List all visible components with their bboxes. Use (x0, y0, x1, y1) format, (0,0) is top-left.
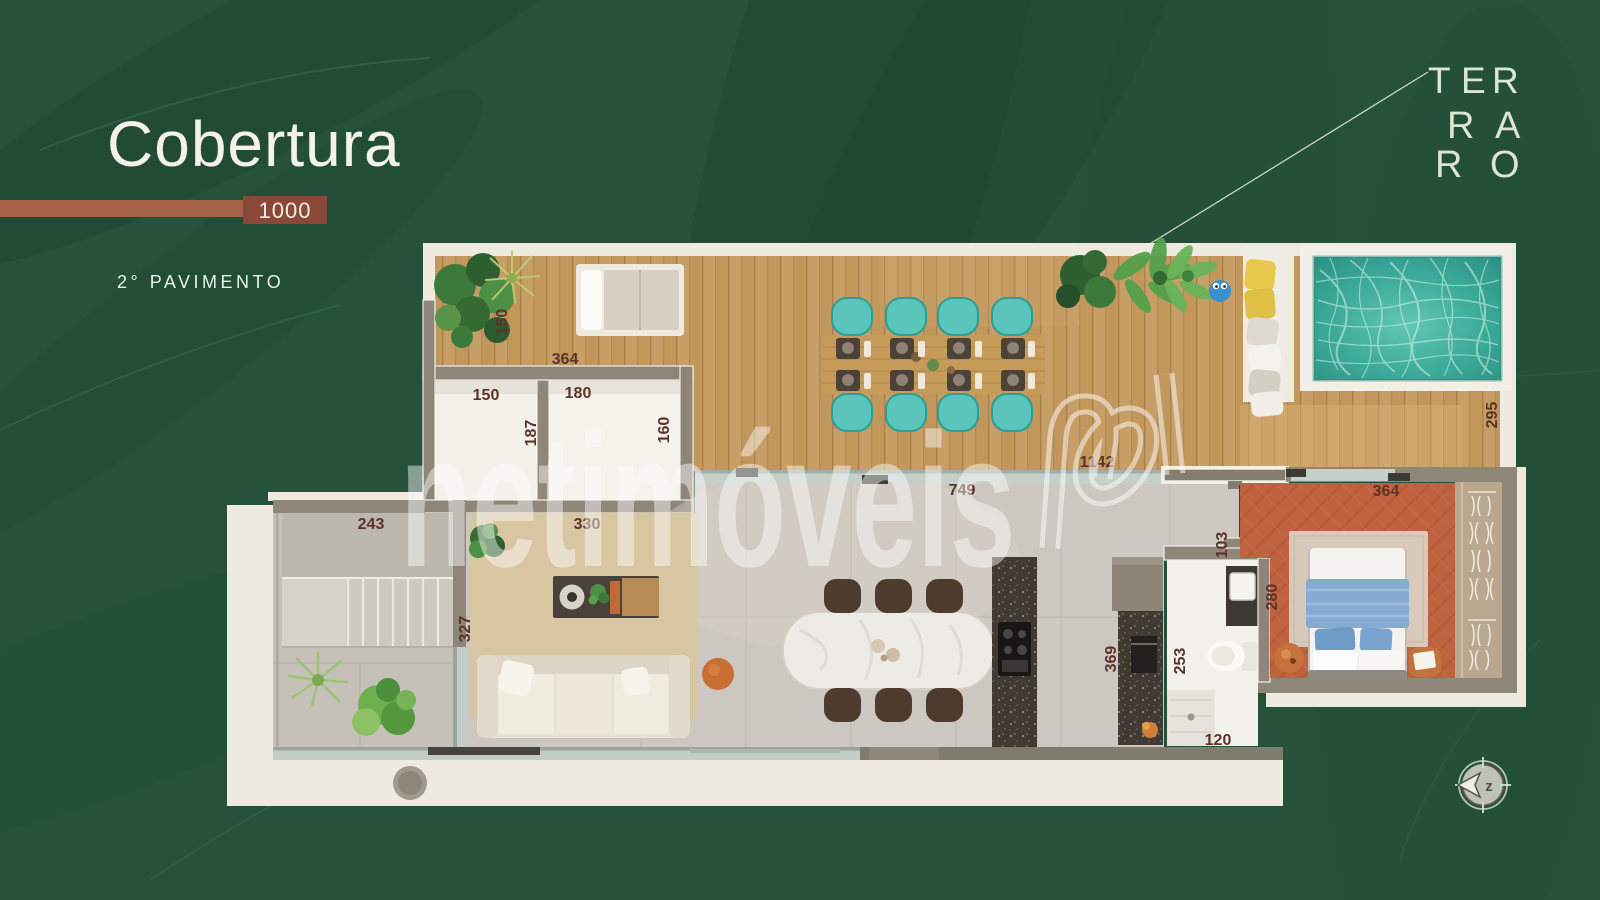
svg-text:103: 103 (1214, 532, 1231, 559)
svg-text:1000: 1000 (259, 198, 312, 223)
svg-text:243: 243 (358, 516, 385, 533)
svg-text:R: R (1447, 105, 1474, 147)
svg-text:327: 327 (457, 616, 474, 643)
svg-text:295: 295 (1484, 402, 1501, 429)
svg-text:280: 280 (1264, 584, 1281, 611)
svg-text:253: 253 (1172, 648, 1189, 675)
svg-text:R: R (1435, 144, 1462, 186)
svg-text:120: 120 (1205, 732, 1232, 749)
svg-text:Cobertura: Cobertura (107, 108, 401, 180)
svg-text:R: R (1492, 60, 1519, 101)
svg-text:O: O (1490, 144, 1520, 186)
svg-text:364: 364 (1373, 483, 1400, 500)
svg-text:364: 364 (552, 351, 579, 368)
svg-text:A: A (1495, 105, 1521, 147)
svg-text:netimóveis: netimóveis (400, 395, 1015, 607)
svg-text:z: z (1485, 778, 1493, 795)
svg-text:2° PAVIMENTO: 2° PAVIMENTO (117, 272, 284, 292)
svg-text:E: E (1461, 60, 1486, 101)
svg-text:150: 150 (494, 309, 511, 336)
svg-text:T: T (1428, 60, 1451, 101)
svg-text:369: 369 (1103, 646, 1120, 673)
